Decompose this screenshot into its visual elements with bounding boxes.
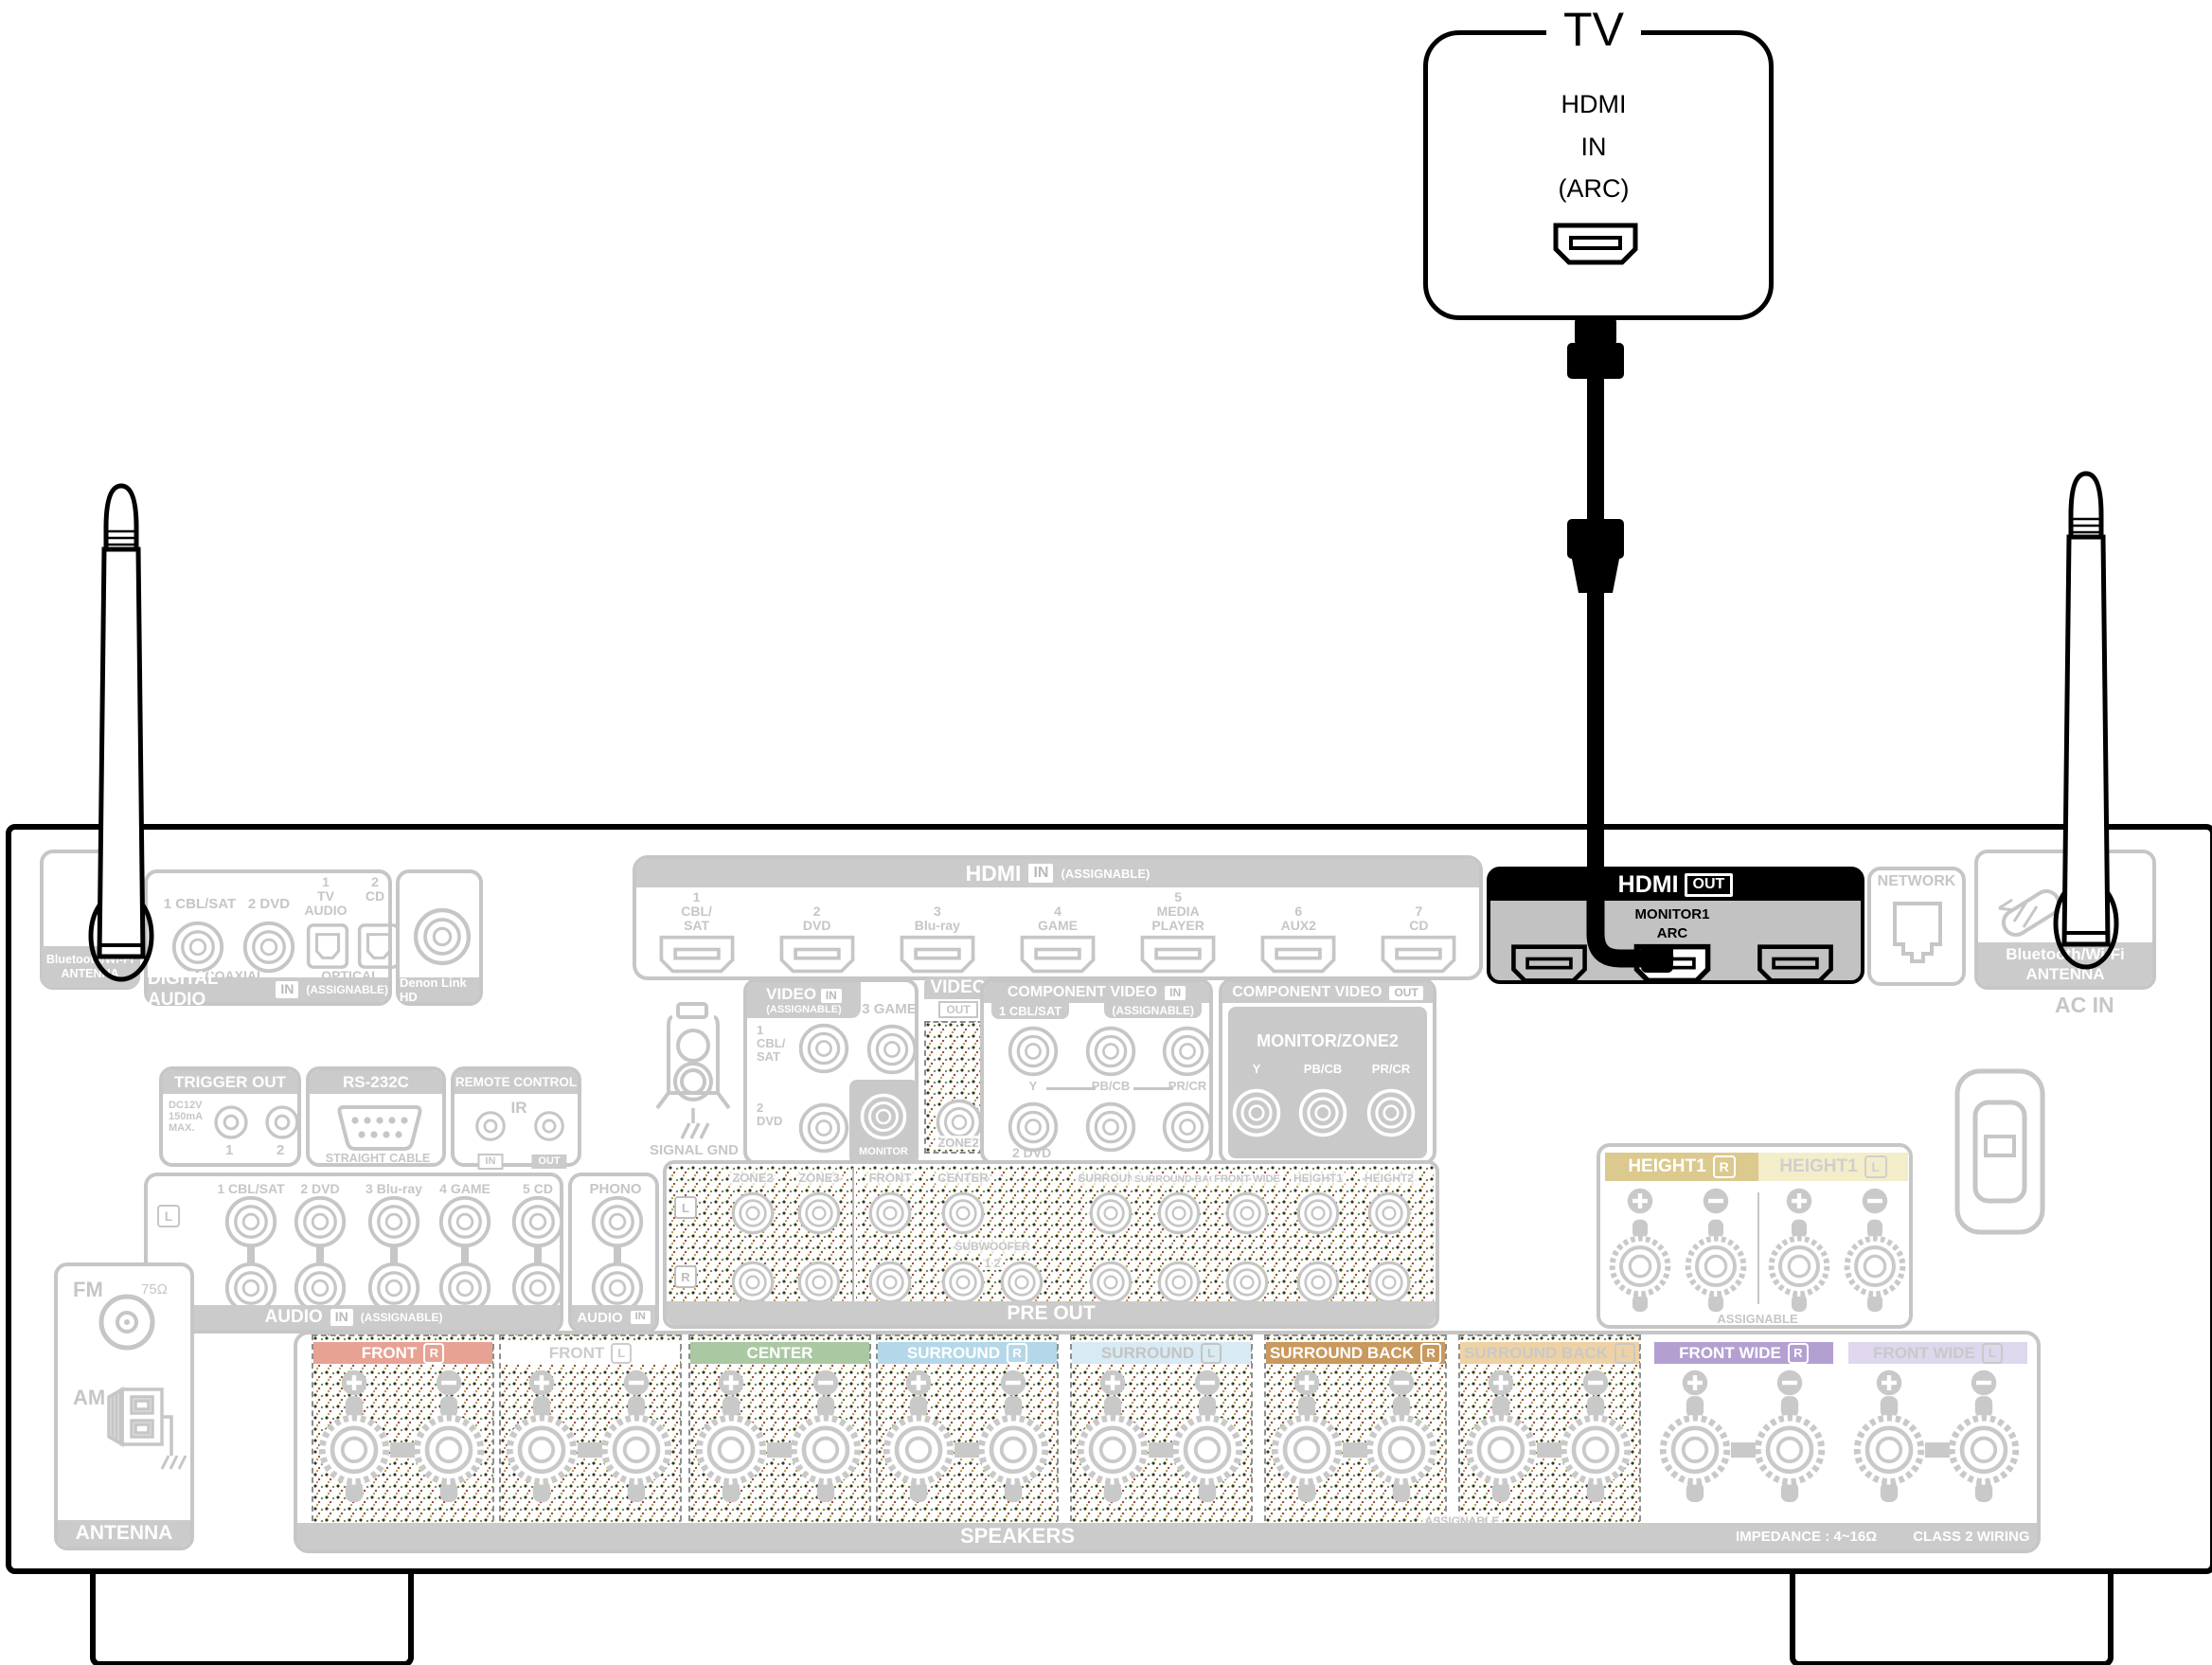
rca-jack-icon bbox=[868, 1191, 912, 1235]
preout-jack-r bbox=[731, 1261, 775, 1304]
component-out-signal-label: PB/CB bbox=[1304, 1062, 1342, 1076]
audio-input-label: 4 GAME bbox=[439, 1181, 491, 1196]
speaker-binding-post bbox=[1069, 1393, 1156, 1507]
speaker-block: FRONTR bbox=[312, 1334, 494, 1531]
hdmi-in-port-7: 7 CD bbox=[1359, 889, 1479, 980]
in-badge: IN bbox=[330, 1309, 353, 1326]
game-label: 3 GAME bbox=[862, 1001, 917, 1017]
preout-jack-l bbox=[1225, 1191, 1269, 1235]
rca-jack-icon bbox=[413, 907, 472, 966]
video-monitor-box: MONITOR bbox=[849, 1080, 919, 1165]
optical-port-icon bbox=[357, 922, 401, 970]
binding-post-icon bbox=[1164, 1393, 1251, 1507]
audio-jack-l bbox=[511, 1195, 564, 1248]
binding-post-icon bbox=[1602, 1217, 1678, 1316]
binding-post-icon bbox=[1358, 1393, 1445, 1507]
speaker-binding-post bbox=[875, 1393, 962, 1507]
speaker-binding-post bbox=[311, 1393, 398, 1507]
power-inlet-icon bbox=[1953, 1066, 2047, 1237]
height1-binding-post bbox=[1837, 1217, 1913, 1316]
remote-ir-jack-in bbox=[474, 1110, 507, 1142]
height1-binding-post bbox=[1678, 1217, 1754, 1316]
hdmi-in-port-label: 2 DVD bbox=[803, 904, 831, 933]
rca-jack-icon bbox=[1089, 1261, 1133, 1304]
component-out-header: COMPONENT VIDEO OUT bbox=[1222, 982, 1433, 1003]
rca-jack-icon bbox=[1366, 1088, 1416, 1137]
rca-jack-icon bbox=[1367, 1261, 1411, 1304]
dvd-label: 2 DVD bbox=[757, 1101, 782, 1128]
optical2-label: 2 CD bbox=[366, 875, 384, 904]
minus-icon bbox=[1861, 1187, 1889, 1215]
denon-link-jack bbox=[413, 907, 472, 966]
hdmi-port bbox=[1377, 933, 1460, 976]
hdmi-port bbox=[896, 933, 979, 976]
out-badge: OUT bbox=[1389, 986, 1422, 1000]
hdmi-plug-mid-icon bbox=[1567, 519, 1624, 559]
audio-jack-l bbox=[367, 1195, 420, 1248]
hdmi-port-icon bbox=[655, 933, 739, 976]
binding-post-icon bbox=[1457, 1393, 1544, 1507]
pre-out-divider bbox=[852, 1168, 856, 1304]
speaker-block: FRONTL bbox=[499, 1334, 682, 1531]
rca-jack-icon bbox=[860, 1093, 907, 1140]
trigger-spec: DC12V 150mA MAX. bbox=[169, 1101, 203, 1135]
wifi-antenna-right bbox=[2048, 466, 2124, 982]
phono-box: PHONO AUDIO IN bbox=[568, 1173, 659, 1334]
monitor-zone2-label: MONITOR/ZONE2 bbox=[1257, 1031, 1399, 1051]
hdmi-port-icon bbox=[1257, 933, 1340, 976]
preout-jack-l bbox=[1296, 1191, 1340, 1235]
coax1-label: 1 CBL/SAT bbox=[164, 896, 236, 912]
remote-out-badge: OUT bbox=[531, 1152, 566, 1169]
video-in-header: VIDEO IN (ASSIGNABLE) bbox=[747, 982, 861, 1018]
preout-jack-r bbox=[1225, 1261, 1269, 1304]
in-badge: IN bbox=[1028, 864, 1053, 883]
rca-jack-icon bbox=[1162, 1026, 1213, 1077]
out-badge: OUT bbox=[938, 1001, 977, 1018]
component-in-header: COMPONENT VIDEO IN bbox=[984, 982, 1209, 1003]
preout-jack-r bbox=[1089, 1261, 1133, 1304]
in-badge: IN bbox=[1165, 986, 1186, 1000]
hdmi-in-port-label: 4 GAME bbox=[1038, 904, 1078, 933]
rca-jack-icon bbox=[1157, 1261, 1201, 1304]
component-video-in-box: COMPONENT VIDEO IN 1 CBL/SAT (ASSIGNABLE… bbox=[980, 978, 1213, 1165]
tv-title: TV bbox=[1423, 2, 1764, 57]
trigger-jack-label: 1 bbox=[225, 1142, 233, 1158]
height1-box: HEIGHT1R HEIGHT1L ASSIGNABLE bbox=[1597, 1143, 1913, 1329]
optical-jack bbox=[306, 922, 349, 970]
speaker-binding-post bbox=[498, 1393, 585, 1507]
height1-assignable-label: ASSIGNABLE bbox=[1717, 1312, 1797, 1326]
hdmi-in-port-5: 5 MEDIA PLAYER bbox=[1118, 889, 1239, 980]
rca-jack-icon bbox=[242, 921, 295, 974]
rca-jack-icon bbox=[1162, 1101, 1213, 1153]
audio-in-bar: AUDIO IN (ASSIGNABLE) bbox=[148, 1305, 560, 1330]
digital-audio-bar: DIGITAL AUDIO IN (ASSIGNABLE) bbox=[148, 977, 388, 1002]
component-out-signal-label: Y bbox=[1253, 1062, 1261, 1076]
component-in-jack-top bbox=[1085, 1026, 1136, 1077]
phono-bar: AUDIO IN bbox=[572, 1305, 655, 1330]
component-in-assignable-tab: (ASSIGNABLE) bbox=[1104, 1003, 1202, 1018]
preout-jack-r bbox=[797, 1261, 841, 1304]
terminal-polarity bbox=[1785, 1187, 1813, 1215]
hdmi-in-port-label: 7 CD bbox=[1409, 904, 1428, 933]
speaker-binding-post bbox=[1940, 1393, 2027, 1507]
network-label: NETWORK bbox=[1878, 873, 1956, 890]
preout-jack-l bbox=[1157, 1191, 1201, 1235]
hdmi-in-port-1: 1 CBL/ SAT bbox=[636, 889, 757, 980]
rca-jack-icon bbox=[224, 1195, 277, 1248]
ir-label: IR bbox=[511, 1099, 527, 1118]
in-badge: IN bbox=[276, 981, 298, 998]
preout-jack-l bbox=[941, 1191, 985, 1235]
binding-post-icon bbox=[687, 1393, 775, 1507]
hdmi-plug-top-icon bbox=[1575, 318, 1616, 345]
component-signal-label: Y bbox=[1029, 1079, 1038, 1093]
rca-jack-icon bbox=[797, 1191, 841, 1235]
video-cbl-jack bbox=[798, 1023, 849, 1074]
component-signal-label: PB/CB bbox=[1092, 1079, 1130, 1093]
speaker-block: SURROUNDL bbox=[1070, 1334, 1253, 1531]
preout-jack-l bbox=[1089, 1191, 1133, 1235]
audio-jack-l bbox=[294, 1195, 347, 1248]
binding-post-icon bbox=[311, 1393, 398, 1507]
preout-channel-label: FRONT bbox=[866, 1170, 915, 1187]
component-in-dvd-label: 2 DVD bbox=[1012, 1145, 1051, 1160]
height1-r-bar: HEIGHT1R bbox=[1605, 1153, 1758, 1181]
speaker-binding-post bbox=[1457, 1393, 1544, 1507]
rca-jack-icon bbox=[941, 1191, 985, 1235]
hdmi-in-box: HDMI IN (ASSIGNABLE) 1 CBL/ SAT 2 DVD 3 … bbox=[633, 855, 1483, 980]
preout-channel-label: ZONE3 bbox=[795, 1170, 842, 1187]
rca-jack-icon bbox=[797, 1261, 841, 1304]
rca-jack-icon bbox=[1225, 1191, 1269, 1235]
remote-in-badge: IN bbox=[478, 1152, 504, 1170]
pre-out-box: ZONE2ZONE3FRONTCENTERSURROUNDSURROUND BA… bbox=[663, 1160, 1439, 1329]
speaker-channel-bar: CENTER bbox=[690, 1342, 869, 1364]
rj45-port-icon bbox=[1890, 899, 1945, 967]
rca-jack-icon bbox=[367, 1195, 420, 1248]
speaker-binding-post bbox=[405, 1393, 492, 1507]
binding-post-icon bbox=[593, 1393, 680, 1507]
receiver-foot-left bbox=[90, 1561, 414, 1665]
component-in-jack-top bbox=[1008, 1026, 1059, 1077]
trigger-jack-2 bbox=[264, 1104, 300, 1140]
rca-jack-icon bbox=[511, 1195, 564, 1248]
signal-gnd-post-icon bbox=[644, 1002, 739, 1144]
height1-l-bar: HEIGHT1L bbox=[1758, 1153, 1908, 1181]
rca-jack-icon bbox=[1089, 1191, 1133, 1235]
speaker-channel-bar: FRONTL bbox=[501, 1342, 680, 1364]
fm-jack-icon bbox=[98, 1293, 156, 1352]
speaker-channel-bar: FRONT WIDEL bbox=[1848, 1342, 2027, 1364]
trigger-out-box: TRIGGER OUT DC12V 150mA MAX. 1 2 bbox=[159, 1066, 301, 1167]
height1-binding-post bbox=[1761, 1217, 1837, 1316]
speaker-block: FRONT WIDEL bbox=[1846, 1334, 2029, 1531]
hdmi-in-port-label: 1 CBL/ SAT bbox=[681, 890, 712, 933]
tv-hdmi-port-icon bbox=[1548, 221, 1643, 268]
speaker-binding-post bbox=[1164, 1393, 1251, 1507]
preout-channel-label: ZONE2 bbox=[729, 1170, 776, 1187]
audio-jack-l bbox=[224, 1195, 277, 1248]
mini-jack-icon bbox=[264, 1104, 300, 1140]
hdmi-plug-end-icon bbox=[1641, 944, 1673, 973]
hdmi-port bbox=[1136, 933, 1220, 976]
plus-icon bbox=[1626, 1187, 1654, 1215]
hdmi-port-icon bbox=[776, 933, 859, 976]
audio-input-label: 2 DVD bbox=[300, 1181, 339, 1196]
binding-post-icon bbox=[1552, 1393, 1639, 1507]
post-link bbox=[390, 1442, 415, 1458]
post-link bbox=[1343, 1442, 1367, 1458]
coaxial-jack bbox=[242, 921, 295, 974]
phono-jack-l bbox=[591, 1195, 644, 1248]
hdmi-in-header: HDMI IN (ASSIGNABLE) bbox=[636, 859, 1479, 887]
height1-divider bbox=[1757, 1192, 1759, 1304]
post-link bbox=[767, 1442, 792, 1458]
plus-icon bbox=[1785, 1187, 1813, 1215]
component-out-jack bbox=[1232, 1088, 1281, 1137]
wifi-antenna-left bbox=[83, 478, 159, 994]
rca-jack-icon bbox=[731, 1261, 775, 1304]
rca-jack-icon bbox=[591, 1195, 644, 1248]
antenna-box: FM 75Ω AM ANTENNA bbox=[54, 1262, 194, 1550]
hdmi-in-port-3: 3 Blu-ray bbox=[877, 889, 997, 980]
video-in-box: VIDEO IN (ASSIGNABLE) 3 GAME 1 CBL/ SAT … bbox=[743, 978, 919, 1165]
remote-control-header: REMOTE CONTROL bbox=[455, 1070, 578, 1094]
terminal-polarity bbox=[1702, 1187, 1730, 1215]
hdmi-port bbox=[1016, 933, 1099, 976]
speaker-block: CENTER bbox=[688, 1334, 871, 1531]
preout-channel-label: CENTER bbox=[935, 1170, 990, 1187]
height1-binding-post bbox=[1602, 1217, 1678, 1316]
hdmi-cable bbox=[1515, 313, 1723, 985]
component-out-signal-label: PR/CR bbox=[1372, 1062, 1410, 1076]
antenna-bar: ANTENNA bbox=[58, 1520, 190, 1547]
rca-jack-icon bbox=[1232, 1088, 1281, 1137]
binding-post-icon bbox=[498, 1393, 585, 1507]
rs232c-box: RS-232C STRAIGHT CABLE bbox=[306, 1066, 446, 1167]
rca-jack-icon bbox=[438, 1195, 491, 1248]
speaker-binding-post bbox=[593, 1393, 680, 1507]
optical1-label: 1 TV AUDIO bbox=[304, 875, 347, 918]
post-link bbox=[1149, 1442, 1173, 1458]
hdmi-port-icon bbox=[1754, 942, 1837, 986]
rca-jack-icon bbox=[1225, 1261, 1269, 1304]
coax2-label: 2 DVD bbox=[248, 896, 290, 912]
component-in-jack-top bbox=[1162, 1026, 1213, 1077]
video-dvd-jack bbox=[798, 1102, 849, 1154]
binding-post-icon bbox=[1263, 1393, 1350, 1507]
rca-jack-icon bbox=[1008, 1026, 1059, 1077]
mini-jack-icon bbox=[474, 1110, 507, 1142]
in-badge: IN bbox=[631, 1311, 651, 1324]
component-signal-label: PR/CR bbox=[1168, 1079, 1206, 1093]
monitor-label: MONITOR bbox=[859, 1146, 908, 1157]
hdmi-port-icon bbox=[1016, 933, 1099, 976]
component-in-cbl-tab: 1 CBL/SAT bbox=[991, 1003, 1069, 1019]
rca-jack-icon bbox=[294, 1195, 347, 1248]
speaker-channel-bar: FRONT WIDER bbox=[1654, 1342, 1833, 1364]
speaker-binding-post bbox=[782, 1393, 869, 1507]
optical-jack bbox=[357, 922, 401, 970]
preout-jack-l bbox=[1367, 1191, 1411, 1235]
speaker-binding-post bbox=[1358, 1393, 1445, 1507]
preout-jack-l bbox=[797, 1191, 841, 1235]
audio-in-box: 1 CBL/SAT 2 DVD 3 Blu-ray 4 GAME 5 CD LR… bbox=[144, 1173, 563, 1334]
preout-jack-r bbox=[1367, 1261, 1411, 1304]
preout-jack-l bbox=[868, 1191, 912, 1235]
binding-post-icon bbox=[1651, 1393, 1739, 1507]
rca-jack-icon bbox=[1085, 1101, 1136, 1153]
preout-channel-label: HEIGHT2 bbox=[1362, 1170, 1417, 1187]
component-out-panel: MONITOR/ZONE2 Y PB/CB PR/CR bbox=[1228, 1007, 1427, 1158]
trigger-jack-1 bbox=[213, 1104, 249, 1140]
preout-jack-r bbox=[868, 1261, 912, 1304]
preout-jack-r bbox=[1296, 1261, 1340, 1304]
hdmi-in-port-2: 2 DVD bbox=[757, 889, 877, 980]
rca-jack-icon bbox=[1296, 1191, 1340, 1235]
rca-jack-icon bbox=[171, 921, 224, 974]
hdmi-port bbox=[1257, 933, 1340, 976]
rca-jack-icon bbox=[731, 1191, 775, 1235]
component-in-jack-bottom bbox=[1085, 1101, 1136, 1153]
binding-post-icon bbox=[1940, 1393, 2027, 1507]
mini-jack-icon bbox=[213, 1104, 249, 1140]
speaker-binding-post bbox=[1552, 1393, 1639, 1507]
audio-jack-l bbox=[438, 1195, 491, 1248]
speaker-block: FRONT WIDER bbox=[1652, 1334, 1835, 1531]
connection-diagram: TV HDMI IN (ARC) Bluetooth/Wi-FiANTENNA … bbox=[0, 0, 2212, 1665]
preout-jack-r bbox=[1157, 1261, 1201, 1304]
tv-hdmi-port-label: HDMI IN (ARC) bbox=[1423, 83, 1764, 210]
speakers-box: FRONTR FRONTL CENTER SURROUNDR SURROUNDL… bbox=[294, 1331, 2041, 1553]
binding-post-icon bbox=[970, 1393, 1057, 1507]
straight-cable-label: STRAIGHT CABLE bbox=[326, 1152, 430, 1165]
speaker-binding-post bbox=[1263, 1393, 1350, 1507]
hdmi-in-port-label: 6 AUX2 bbox=[1281, 904, 1316, 933]
binding-post-icon bbox=[405, 1393, 492, 1507]
pre-out-bar: PRE OUT bbox=[667, 1301, 1436, 1325]
rca-jack-icon bbox=[1296, 1261, 1340, 1304]
ac-in-label: AC IN bbox=[2055, 993, 2159, 1018]
hdmi-port-icon bbox=[1377, 933, 1460, 976]
rca-jack-icon bbox=[868, 1261, 912, 1304]
db9-port-icon bbox=[334, 1101, 425, 1153]
hdmi-port-icon bbox=[896, 933, 979, 976]
rca-jack-icon bbox=[798, 1102, 849, 1154]
hdmi-out-port-right bbox=[1754, 942, 1837, 986]
minus-icon bbox=[1702, 1187, 1730, 1215]
binding-post-icon bbox=[1837, 1217, 1913, 1316]
hdmi-port bbox=[655, 933, 739, 976]
remote-ir-jack-out bbox=[533, 1110, 565, 1142]
rca-jack-icon bbox=[1000, 1261, 1044, 1304]
post-link bbox=[954, 1442, 979, 1458]
dash-line bbox=[1046, 1087, 1096, 1090]
rca-jack-icon bbox=[941, 1261, 985, 1304]
preout-r-badge: R bbox=[674, 1265, 697, 1288]
speaker-block: SURROUND BACKL bbox=[1458, 1334, 1641, 1531]
speaker-binding-post bbox=[1846, 1393, 1933, 1507]
speaker-channel-bar: SURROUND BACKR bbox=[1266, 1342, 1445, 1364]
remote-control-box: REMOTE CONTROL IR IN OUT bbox=[451, 1066, 581, 1167]
digital-audio-box: 1 CBL/SAT 2 DVD 1 TV AUDIO 2 CD COAXIAL … bbox=[144, 869, 392, 1006]
component-video-out-box: COMPONENT VIDEO OUT MONITOR/ZONE2 Y PB/C… bbox=[1219, 978, 1436, 1165]
audio-l-badge: L bbox=[157, 1205, 180, 1227]
hdmi-port-icon bbox=[1136, 933, 1220, 976]
cbl-label: 1 CBL/ SAT bbox=[757, 1024, 785, 1064]
preout-jack-l bbox=[731, 1191, 775, 1235]
audio-input-label: 1 CBL/SAT bbox=[217, 1181, 284, 1196]
coaxial-jack bbox=[171, 921, 224, 974]
speaker-block: SURROUNDR bbox=[876, 1334, 1059, 1531]
subwoofer-numbers: 1 2 bbox=[982, 1255, 1004, 1272]
terminal-polarity bbox=[1861, 1187, 1889, 1215]
hdmi-in-port-label: 3 Blu-ray bbox=[915, 904, 960, 933]
speaker-block: SURROUND BACKR bbox=[1264, 1334, 1447, 1531]
zone2-label: ZONE2 bbox=[935, 1135, 981, 1152]
preout-l-badge: L bbox=[674, 1196, 697, 1219]
post-link bbox=[578, 1442, 602, 1458]
preout-jack-r bbox=[1000, 1261, 1044, 1304]
component-out-jack bbox=[1366, 1088, 1416, 1137]
audio-input-label: 3 Blu-ray bbox=[366, 1181, 422, 1196]
hdmi-in-port-4: 4 GAME bbox=[997, 889, 1117, 980]
rca-jack-icon bbox=[1157, 1191, 1201, 1235]
preout-jack-r bbox=[941, 1261, 985, 1304]
mini-jack-icon bbox=[533, 1110, 565, 1142]
speaker-binding-post bbox=[687, 1393, 775, 1507]
preout-channel-label: FRONT WIDE bbox=[1211, 1170, 1283, 1187]
post-link bbox=[1925, 1442, 1950, 1458]
binding-post-icon bbox=[782, 1393, 869, 1507]
hdmi-in-port-6: 6 AUX2 bbox=[1239, 889, 1359, 980]
binding-post-icon bbox=[1746, 1393, 1833, 1507]
video-monitor-jack bbox=[860, 1093, 907, 1140]
rca-jack-icon bbox=[1085, 1026, 1136, 1077]
speaker-channel-bar: FRONTR bbox=[313, 1342, 492, 1364]
rca-jack-icon bbox=[798, 1023, 849, 1074]
post-link bbox=[1731, 1442, 1756, 1458]
denon-link-bar: Denon Link HD bbox=[400, 977, 479, 1002]
speaker-binding-post bbox=[1651, 1393, 1739, 1507]
am-terminal-icon bbox=[101, 1382, 188, 1477]
trigger-jack-label: 2 bbox=[276, 1142, 284, 1158]
terminal-polarity bbox=[1626, 1187, 1654, 1215]
speaker-channel-bar: SURROUNDR bbox=[878, 1342, 1057, 1364]
speaker-binding-post bbox=[1746, 1393, 1833, 1507]
rca-jack-icon bbox=[866, 1024, 918, 1075]
speaker-channel-bar: SURROUND BACKL bbox=[1460, 1342, 1639, 1364]
preout-channel-label: HEIGHT1 bbox=[1291, 1170, 1346, 1187]
subwoofer-label: SUBWOOFER bbox=[952, 1238, 1032, 1255]
binding-post-icon bbox=[1069, 1393, 1156, 1507]
dash-line bbox=[1133, 1087, 1173, 1090]
binding-post-icon bbox=[875, 1393, 962, 1507]
binding-post-icon bbox=[1678, 1217, 1754, 1316]
receiver-foot-right bbox=[1790, 1561, 2114, 1665]
component-out-jack bbox=[1298, 1088, 1347, 1137]
network-box: NETWORK bbox=[1867, 867, 1966, 986]
trigger-out-header: TRIGGER OUT bbox=[163, 1070, 297, 1094]
rs232c-header: RS-232C bbox=[310, 1070, 442, 1094]
rca-jack-icon bbox=[1367, 1191, 1411, 1235]
video-game-jack bbox=[866, 1024, 918, 1075]
speaker-binding-post bbox=[970, 1393, 1057, 1507]
binding-post-icon bbox=[1761, 1217, 1837, 1316]
speaker-channel-bar: SURROUNDL bbox=[1072, 1342, 1251, 1364]
